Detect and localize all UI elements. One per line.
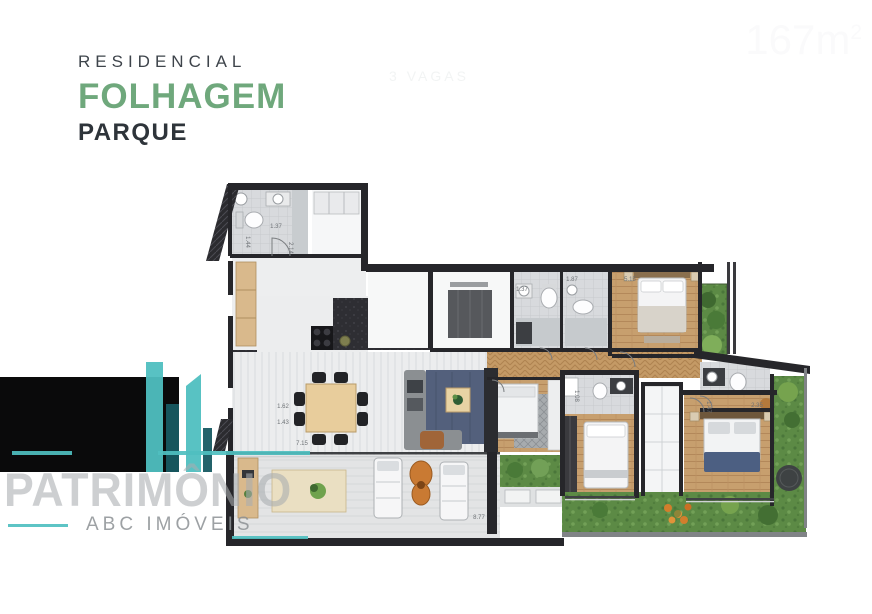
garden-top-right (700, 284, 727, 358)
room-service-closet (368, 272, 510, 348)
flyer-canvas: 1.372.141.441.621.437.155.151.871.371.08… (0, 0, 872, 614)
dimension-label: 1.43 (277, 420, 289, 426)
dimension-label: 8.77 (473, 515, 485, 521)
dimension-label: 2.35 (751, 403, 763, 409)
dimension-label: 1.44 (244, 236, 250, 248)
room-entry-closet (312, 190, 361, 254)
dimension-label: 2.14 (287, 242, 293, 254)
accent-line (158, 451, 310, 455)
skyline-building-icon (186, 374, 201, 472)
area-value: 167m2 (745, 16, 862, 64)
accent-line (232, 536, 308, 539)
room-bath-2 (563, 272, 608, 348)
accent-line (12, 451, 72, 455)
dimension-label: 1.87 (566, 277, 578, 283)
logo-line-folhagem: FOLHAGEM (78, 77, 286, 117)
dimension-label: 5.15 (624, 277, 636, 283)
closet-column (643, 386, 681, 496)
dimension-label: 1.62 (277, 404, 289, 410)
garden-courtyard (500, 455, 562, 507)
dimension-label: 1.08 (573, 390, 579, 402)
project-logo: RESIDENCIAL FOLHAGEM PARQUE (78, 52, 286, 147)
room-bath-1 (514, 272, 560, 348)
guitar-side-table (410, 461, 432, 505)
accent-line (8, 524, 68, 527)
lounger-1 (374, 458, 402, 518)
dimension-label: 1.37 (516, 287, 528, 293)
dimension-label: 1.37 (270, 224, 282, 230)
logo-line-parque: PARQUE (78, 119, 286, 147)
room-bedroom-2 (487, 380, 562, 452)
room-lavabo (232, 190, 308, 254)
logo-line-residencial: RESIDENCIAL (78, 52, 286, 72)
room-bedroom-3 (562, 414, 635, 498)
room-living-dining (232, 352, 487, 455)
watermark-tagline: ABC IMÓVEIS (86, 514, 254, 536)
room-bath-4 (562, 374, 635, 414)
dimension-label: 1.47 (705, 401, 711, 413)
dimension-label: 7.15 (296, 441, 308, 447)
lounger-2 (440, 462, 468, 520)
skyline-building-icon (146, 362, 163, 472)
watermark-brand-name: PATRIMÔNIO (4, 462, 292, 517)
living-sofa (404, 370, 487, 450)
